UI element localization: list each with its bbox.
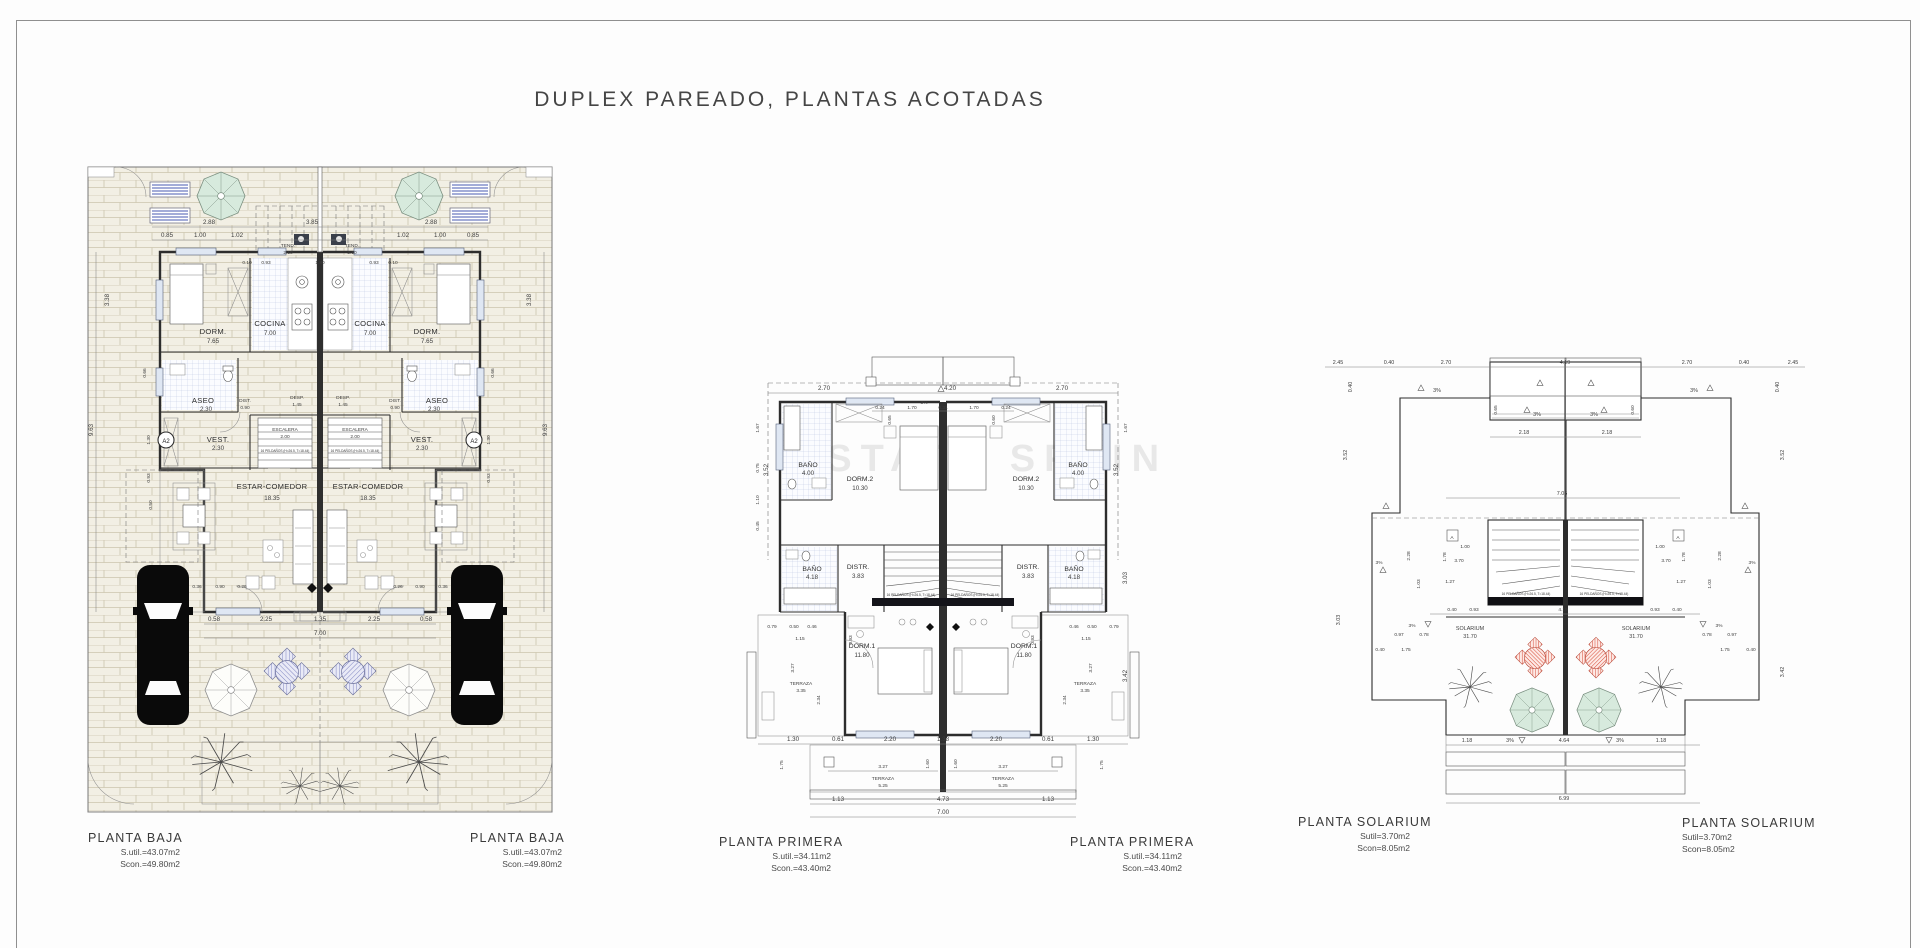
- svg-text:3.03: 3.03: [1336, 615, 1342, 626]
- svg-text:DORM.2: DORM.2: [1013, 476, 1040, 483]
- plan-sutil: Sutil=3.70m2: [1298, 831, 1410, 841]
- svg-text:2.25: 2.25: [260, 616, 273, 623]
- svg-text:2.45: 2.45: [1788, 360, 1799, 366]
- svg-text:0.24: 0.24: [1001, 405, 1011, 411]
- svg-text:0.46: 0.46: [807, 624, 817, 630]
- svg-text:1.45: 1.45: [292, 402, 302, 408]
- svg-text:0.85: 0.85: [161, 232, 174, 239]
- plan-label-primera-left: PLANTA PRIMERA S.util.=34.11m2 Scon.=43.…: [719, 835, 831, 873]
- svg-text:2.00: 2.00: [280, 434, 290, 440]
- svg-text:0.93: 0.93: [369, 260, 379, 266]
- svg-text:16 PELDAÑOS (H=26.5, T=18.44): 16 PELDAÑOS (H=26.5, T=18.44): [261, 448, 310, 453]
- svg-text:1.02: 1.02: [397, 232, 410, 239]
- plan-title: PLANTA PRIMERA: [719, 835, 831, 849]
- svg-text:3%: 3%: [1690, 388, 1698, 394]
- svg-text:0.26: 0.26: [237, 584, 247, 590]
- svg-text:0.58: 0.58: [208, 616, 221, 623]
- svg-text:1.30: 1.30: [1087, 736, 1100, 743]
- planta-primera-plan: BAÑO4.00 BAÑO4.00 DORM.210.30 DORM.210.3…: [747, 357, 1139, 817]
- svg-text:DORM.: DORM.: [200, 327, 227, 336]
- svg-text:1.30: 1.30: [146, 435, 152, 445]
- svg-text:DISTR.: DISTR.: [847, 564, 869, 571]
- svg-text:TERRAZA: TERRAZA: [872, 776, 895, 782]
- svg-text:ESTAR-COMEDOR: ESTAR-COMEDOR: [237, 482, 308, 491]
- svg-text:0.10: 0.10: [242, 260, 252, 266]
- svg-text:3%: 3%: [1409, 623, 1417, 629]
- plan-label-solarium-left: PLANTA SOLARIUM Sutil=3.70m2 Scon=8.05m2: [1298, 815, 1410, 853]
- svg-text:3.52: 3.52: [1780, 450, 1786, 461]
- svg-text:0.31: 0.31: [938, 405, 948, 411]
- plan-title: PLANTA PRIMERA: [1070, 835, 1182, 849]
- svg-text:TERRAZA: TERRAZA: [790, 681, 813, 687]
- plan-title: PLANTA SOLARIUM: [1298, 815, 1410, 829]
- svg-text:2.34: 2.34: [1062, 695, 1068, 705]
- svg-text:2.10: 2.10: [283, 250, 293, 256]
- plan-sutil: S.util.=43.07m2: [470, 847, 562, 857]
- svg-text:1.75: 1.75: [779, 760, 785, 770]
- svg-text:0.40: 0.40: [1447, 607, 1457, 613]
- plan-scon: Scon=8.05m2: [1298, 843, 1410, 853]
- svg-text:7.00: 7.00: [364, 330, 377, 337]
- svg-text:SOLARIUM: SOLARIUM: [1622, 626, 1651, 632]
- svg-text:1.03: 1.03: [1707, 579, 1713, 589]
- svg-text:1.18: 1.18: [1462, 738, 1473, 744]
- svg-text:4.64: 4.64: [1559, 738, 1570, 744]
- svg-text:2.70: 2.70: [1056, 385, 1069, 392]
- svg-text:0.79: 0.79: [1109, 624, 1119, 630]
- svg-text:0.40: 0.40: [1775, 382, 1781, 393]
- svg-text:0.79: 0.79: [767, 624, 777, 630]
- svg-text:3.27: 3.27: [790, 663, 796, 673]
- svg-text:TEND.: TEND.: [345, 243, 359, 249]
- svg-text:7.65: 7.65: [421, 338, 434, 345]
- svg-text:3%: 3%: [1616, 738, 1624, 744]
- svg-text:16 PELDAÑOS (H=26.5, T=18.44): 16 PELDAÑOS (H=26.5, T=18.44): [887, 592, 936, 597]
- svg-text:16 PELDAÑOS (H=26.5, T=18.44): 16 PELDAÑOS (H=26.5, T=18.44): [331, 448, 380, 453]
- svg-text:1.13: 1.13: [832, 796, 845, 803]
- svg-text:0.90: 0.90: [215, 584, 225, 590]
- svg-text:TERRAZA: TERRAZA: [992, 776, 1015, 782]
- svg-text:2.20: 2.20: [884, 736, 897, 743]
- svg-text:1.03: 1.03: [1416, 579, 1422, 589]
- svg-text:0.60: 0.60: [1630, 405, 1636, 415]
- svg-text:1.00: 1.00: [1655, 544, 1665, 550]
- svg-text:VEST.: VEST.: [411, 435, 434, 444]
- plan-label-primera-right: PLANTA PRIMERA S.util.=34.11m2 Scon.=43.…: [1070, 835, 1182, 873]
- svg-text:3%: 3%: [1749, 560, 1757, 566]
- svg-text:BAÑO: BAÑO: [798, 460, 817, 469]
- svg-text:1.70: 1.70: [907, 405, 917, 411]
- svg-text:2.34: 2.34: [816, 695, 822, 705]
- plan-title: PLANTA BAJA: [88, 831, 180, 845]
- svg-text:TERRAZA: TERRAZA: [1074, 681, 1097, 687]
- svg-text:4.19: 4.19: [1560, 360, 1571, 366]
- svg-text:0.90: 0.90: [415, 584, 425, 590]
- svg-text:0.50: 0.50: [1087, 624, 1097, 630]
- svg-text:4.00: 4.00: [802, 470, 815, 477]
- svg-text:3.38: 3.38: [104, 293, 111, 306]
- svg-text:1.45: 1.45: [338, 402, 348, 408]
- svg-text:2.70: 2.70: [1441, 360, 1452, 366]
- svg-text:0.61: 0.61: [1042, 736, 1055, 743]
- svg-text:7.00: 7.00: [264, 330, 277, 337]
- svg-text:3%: 3%: [1590, 412, 1598, 418]
- svg-text:11.80: 11.80: [1016, 652, 1032, 659]
- svg-text:1.70: 1.70: [969, 405, 979, 411]
- plan-title: PLANTA BAJA: [470, 831, 562, 845]
- svg-text:31.70: 31.70: [1463, 634, 1477, 640]
- svg-text:2.30: 2.30: [416, 445, 429, 452]
- svg-text:DESP.: DESP.: [290, 395, 304, 401]
- svg-text:3.85: 3.85: [306, 219, 319, 226]
- svg-text:1.75: 1.75: [1099, 760, 1105, 770]
- svg-text:3%: 3%: [1716, 623, 1724, 629]
- svg-text:10.30: 10.30: [852, 485, 868, 492]
- svg-text:2.10: 2.10: [347, 250, 357, 256]
- svg-text:1.18: 1.18: [1656, 738, 1667, 744]
- svg-text:3.83: 3.83: [852, 573, 865, 580]
- svg-text:1.27: 1.27: [1676, 579, 1686, 585]
- svg-text:0.10: 0.10: [388, 260, 398, 266]
- svg-text:4.19: 4.19: [1558, 607, 1568, 613]
- svg-text:2.88: 2.88: [203, 219, 216, 226]
- svg-text:0.65: 0.65: [887, 415, 893, 425]
- svg-text:0.24: 0.24: [875, 405, 885, 411]
- svg-text:5.25: 5.25: [998, 783, 1008, 789]
- svg-text:2.00: 2.00: [350, 434, 360, 440]
- svg-text:3.27: 3.27: [878, 764, 888, 770]
- svg-text:1.27: 1.27: [1445, 579, 1455, 585]
- planta-baja-plan: DORM.7.65 DORM.7.65 COCINA7.00 COCINA7.0…: [88, 167, 552, 812]
- svg-text:9.63: 9.63: [542, 423, 549, 436]
- svg-text:TEND.: TEND.: [281, 243, 295, 249]
- svg-text:2.45: 2.45: [1333, 360, 1344, 366]
- svg-text:1.02: 1.02: [231, 232, 244, 239]
- svg-text:4.20: 4.20: [944, 385, 957, 392]
- svg-text:16 PELDAÑOS (H=26.5, T=18.44): 16 PELDAÑOS (H=26.5, T=18.44): [1580, 591, 1629, 596]
- svg-text:DIST.: DIST.: [389, 398, 401, 404]
- svg-text:1.60: 1.60: [925, 759, 931, 769]
- plan-scon: Scon=8.05m2: [1682, 844, 1794, 854]
- plan-label-baja-right: PLANTA BAJA S.util.=43.07m2 Scon.=49.80m…: [470, 831, 562, 869]
- svg-text:2.20: 2.20: [990, 736, 1003, 743]
- svg-text:5.25: 5.25: [878, 783, 888, 789]
- svg-text:2.28: 2.28: [1717, 551, 1723, 561]
- svg-text:4.18: 4.18: [806, 574, 819, 581]
- svg-text:1.30: 1.30: [787, 736, 800, 743]
- svg-text:0.40: 0.40: [1739, 360, 1750, 366]
- svg-text:11.80: 11.80: [854, 652, 870, 659]
- svg-text:BAÑO: BAÑO: [802, 564, 821, 573]
- svg-text:2.25: 2.25: [368, 616, 381, 623]
- svg-text:7.00: 7.00: [937, 809, 950, 816]
- svg-text:1.67: 1.67: [1123, 423, 1129, 433]
- svg-text:0.93: 0.93: [1469, 607, 1479, 613]
- plan-scon: Scon.=49.80m2: [88, 859, 180, 869]
- planta-solarium-plan: SOLARIUM 31.70 SOLARIUM 31.70 16 PELDAÑO…: [1325, 358, 1805, 803]
- svg-text:0.36: 0.36: [438, 584, 448, 590]
- svg-text:ASEO: ASEO: [426, 396, 448, 405]
- svg-text:0.61: 0.61: [832, 736, 845, 743]
- svg-text:3.38: 3.38: [526, 293, 533, 306]
- svg-text:7.00: 7.00: [314, 630, 327, 637]
- plan-sutil: S.util.=43.07m2: [88, 847, 180, 857]
- plan-scon: Scon.=43.40m2: [719, 863, 831, 873]
- svg-text:4.18: 4.18: [1068, 574, 1081, 581]
- svg-text:DORM.2: DORM.2: [847, 476, 874, 483]
- svg-text:2.70: 2.70: [1682, 360, 1693, 366]
- svg-text:DORM.: DORM.: [414, 327, 441, 336]
- svg-text:2.18: 2.18: [1602, 430, 1613, 436]
- svg-text:7.05: 7.05: [1557, 491, 1568, 497]
- svg-text:ESCALERA: ESCALERA: [342, 427, 368, 433]
- svg-text:1.00: 1.00: [434, 232, 447, 239]
- floor-plans-drawing: DORM.7.65 DORM.7.65 COCINA7.00 COCINA7.0…: [0, 0, 1920, 948]
- svg-text:1.75: 1.75: [1401, 647, 1411, 653]
- svg-text:1.15: 1.15: [795, 636, 805, 642]
- svg-text:1.75: 1.75: [1720, 647, 1730, 653]
- svg-text:3%: 3%: [1533, 412, 1541, 418]
- svg-text:3.52: 3.52: [763, 463, 770, 476]
- svg-text:3%: 3%: [1506, 738, 1514, 744]
- svg-text:0.93: 0.93: [261, 260, 271, 266]
- svg-text:BAÑO: BAÑO: [1064, 564, 1083, 573]
- svg-text:0.66: 0.66: [490, 368, 496, 378]
- svg-text:1.78: 1.78: [1442, 552, 1448, 562]
- svg-text:3%: 3%: [1376, 560, 1384, 566]
- svg-text:0.90: 0.90: [390, 405, 400, 411]
- svg-text:DIST.: DIST.: [239, 398, 251, 404]
- svg-text:0.93: 0.93: [486, 473, 492, 483]
- svg-text:DISTR.: DISTR.: [1017, 564, 1039, 571]
- svg-text:ASEO: ASEO: [192, 396, 214, 405]
- svg-text:7.65: 7.65: [207, 338, 220, 345]
- svg-text:18.35: 18.35: [360, 495, 376, 502]
- svg-text:0.97: 0.97: [1394, 632, 1404, 638]
- svg-text:3.03: 3.03: [1122, 571, 1129, 584]
- svg-text:1.60: 1.60: [953, 759, 959, 769]
- svg-text:1.67: 1.67: [755, 423, 761, 433]
- svg-text:0.58: 0.58: [420, 616, 433, 623]
- svg-text:0.60: 0.60: [991, 415, 997, 425]
- svg-text:3.52: 3.52: [1113, 463, 1120, 476]
- svg-text:0.66: 0.66: [142, 368, 148, 378]
- svg-text:4.00: 4.00: [1072, 470, 1085, 477]
- svg-text:2.88: 2.88: [425, 219, 438, 226]
- svg-text:9.63: 9.63: [88, 423, 95, 436]
- svg-text:2.30: 2.30: [200, 406, 213, 413]
- svg-text:6.99: 6.99: [1559, 796, 1570, 802]
- svg-text:COCINA: COCINA: [254, 319, 286, 328]
- svg-text:3.35: 3.35: [1080, 688, 1090, 694]
- plan-sutil: Sutil=3.70m2: [1682, 832, 1794, 842]
- svg-text:COCINA: COCINA: [354, 319, 386, 328]
- svg-text:0.45: 0.45: [755, 521, 761, 531]
- svg-text:1.80: 1.80: [315, 260, 325, 266]
- svg-text:3.83: 3.83: [1022, 573, 1035, 580]
- svg-text:A2: A2: [162, 439, 170, 445]
- svg-text:3%: 3%: [1433, 388, 1441, 394]
- svg-text:0.78: 0.78: [1702, 632, 1712, 638]
- svg-text:2.70: 2.70: [818, 385, 831, 392]
- svg-text:18.35: 18.35: [264, 495, 280, 502]
- svg-text:0.46: 0.46: [1069, 624, 1079, 630]
- plan-scon: Scon.=43.40m2: [1070, 863, 1182, 873]
- plan-sutil: S.util.=34.11m2: [719, 851, 831, 861]
- svg-text:VEST.: VEST.: [207, 435, 230, 444]
- svg-text:3.27: 3.27: [998, 764, 1008, 770]
- svg-text:2.28: 2.28: [1406, 551, 1412, 561]
- svg-text:0.93: 0.93: [848, 635, 854, 645]
- svg-text:A2: A2: [470, 439, 478, 445]
- svg-text:0.93: 0.93: [1650, 607, 1660, 613]
- svg-text:16 PELDAÑOS (H=26.5, T=18.44): 16 PELDAÑOS (H=26.5, T=18.44): [1502, 591, 1551, 596]
- svg-text:ESTAR-COMEDOR: ESTAR-COMEDOR: [333, 482, 404, 491]
- svg-text:0.65: 0.65: [1493, 405, 1499, 415]
- svg-text:0.40: 0.40: [1672, 607, 1682, 613]
- drawing-sheet: DUPLEX PAREADO, PLANTAS ACOTADAS ESTATE …: [0, 0, 1920, 948]
- svg-text:3.42: 3.42: [1780, 667, 1786, 678]
- svg-text:0.40: 0.40: [1746, 647, 1756, 653]
- svg-text:3.42: 3.42: [1122, 669, 1129, 682]
- svg-text:1.10: 1.10: [755, 495, 761, 505]
- svg-text:SOLARIUM: SOLARIUM: [1456, 626, 1485, 632]
- plan-label-solarium-right: PLANTA SOLARIUM Sutil=3.70m2 Scon=8.05m2: [1682, 816, 1794, 854]
- svg-text:16 PELDAÑOS (H=26.5, T=18.44): 16 PELDAÑOS (H=26.5, T=18.44): [951, 592, 1000, 597]
- svg-text:0.36: 0.36: [192, 584, 202, 590]
- svg-text:0.50: 0.50: [789, 624, 799, 630]
- svg-text:0.90: 0.90: [240, 405, 250, 411]
- svg-text:3.70: 3.70: [1454, 558, 1464, 564]
- svg-text:4.73: 4.73: [937, 796, 950, 803]
- svg-text:0.26: 0.26: [393, 584, 403, 590]
- svg-text:3.27: 3.27: [1088, 663, 1094, 673]
- plan-scon: Scon.=49.80m2: [470, 859, 562, 869]
- svg-text:0.40: 0.40: [1375, 647, 1385, 653]
- svg-text:DESP.: DESP.: [336, 395, 350, 401]
- svg-text:0.50: 0.50: [148, 500, 154, 510]
- svg-text:1.00: 1.00: [1460, 544, 1470, 550]
- plan-sutil: S.util.=34.11m2: [1070, 851, 1182, 861]
- svg-text:1.78: 1.78: [1681, 552, 1687, 562]
- svg-text:0.40: 0.40: [1384, 360, 1395, 366]
- svg-text:1.00: 1.00: [194, 232, 207, 239]
- svg-text:0.75: 0.75: [755, 463, 761, 473]
- svg-text:3%: 3%: [921, 400, 929, 406]
- svg-text:1.15: 1.15: [1081, 636, 1091, 642]
- svg-text:0.93: 0.93: [146, 473, 152, 483]
- svg-text:3.35: 3.35: [796, 688, 806, 694]
- svg-text:3.70: 3.70: [1661, 558, 1671, 564]
- svg-text:2.30: 2.30: [212, 445, 225, 452]
- svg-text:ESCALERA: ESCALERA: [272, 427, 298, 433]
- svg-text:1.38: 1.38: [937, 736, 950, 743]
- svg-text:1.13: 1.13: [1042, 796, 1055, 803]
- svg-text:0.97: 0.97: [1727, 632, 1737, 638]
- plan-label-baja-left: PLANTA BAJA S.util.=43.07m2 Scon.=49.80m…: [88, 831, 180, 869]
- svg-text:0.78: 0.78: [1419, 632, 1429, 638]
- svg-text:0.85: 0.85: [467, 232, 480, 239]
- plan-title: PLANTA SOLARIUM: [1682, 816, 1794, 830]
- svg-text:1.35: 1.35: [314, 616, 327, 623]
- svg-text:0.93: 0.93: [1030, 635, 1036, 645]
- svg-text:0.40: 0.40: [1348, 382, 1354, 393]
- svg-text:1.30: 1.30: [486, 435, 492, 445]
- svg-text:BAÑO: BAÑO: [1068, 460, 1087, 469]
- svg-text:3.52: 3.52: [1343, 450, 1349, 461]
- svg-text:31.70: 31.70: [1629, 634, 1643, 640]
- svg-text:2.30: 2.30: [428, 406, 441, 413]
- svg-text:2.18: 2.18: [1519, 430, 1530, 436]
- svg-text:10.30: 10.30: [1018, 485, 1034, 492]
